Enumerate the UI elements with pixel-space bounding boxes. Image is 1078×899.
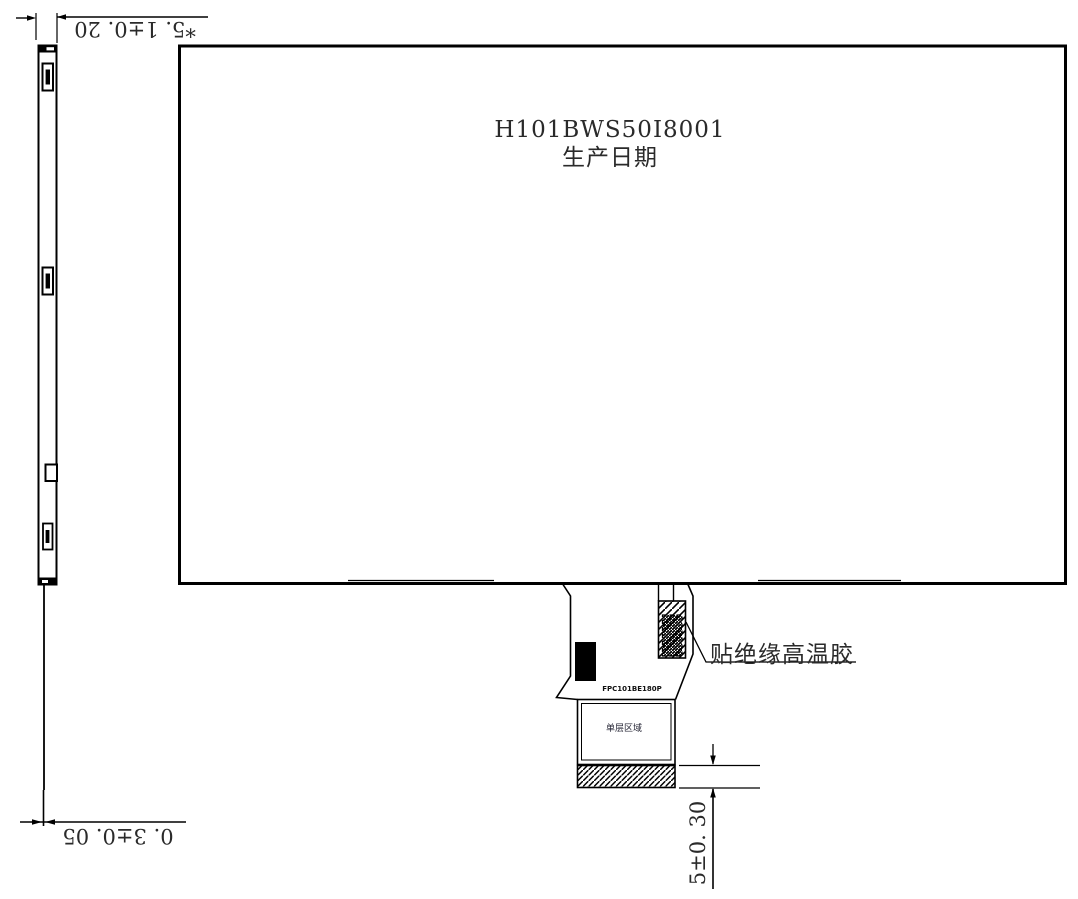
dim-fpc-thickness <box>20 790 186 826</box>
tape-note-text: 贴绝缘高温胶 <box>710 635 854 669</box>
mechanical-drawing-page: H101BWS50I8001 生产日期 贴绝缘高温胶 FPC101BE180P … <box>0 0 1078 899</box>
fpc-part-number: FPC101BE180P <box>597 685 667 693</box>
fpc-area-label: 单层区域 <box>589 721 659 734</box>
panel-date-label: 生产日期 <box>410 144 810 172</box>
side-view-tab-3 <box>46 465 58 482</box>
panel-label-block: H101BWS50I8001 生产日期 <box>410 116 810 172</box>
dim-side-thickness-text: *5. 1±0. 20 <box>60 17 210 41</box>
dim-fpc-thickness-text: 0. 3±0. 05 <box>43 824 193 848</box>
panel-model-text: H101BWS50I8001 <box>410 116 810 144</box>
fpc-left-edge <box>557 585 578 700</box>
fpc-finger-bar <box>578 766 676 788</box>
side-view-tab-1 <box>43 64 54 91</box>
side-view <box>39 46 58 791</box>
dim-connector-height-text: 5±0. 30 <box>686 793 710 893</box>
side-view-tab-4 <box>43 524 53 550</box>
insulation-tape <box>659 601 686 658</box>
fpc-ic-chip <box>575 642 596 681</box>
side-view-tab-2 <box>43 268 54 295</box>
